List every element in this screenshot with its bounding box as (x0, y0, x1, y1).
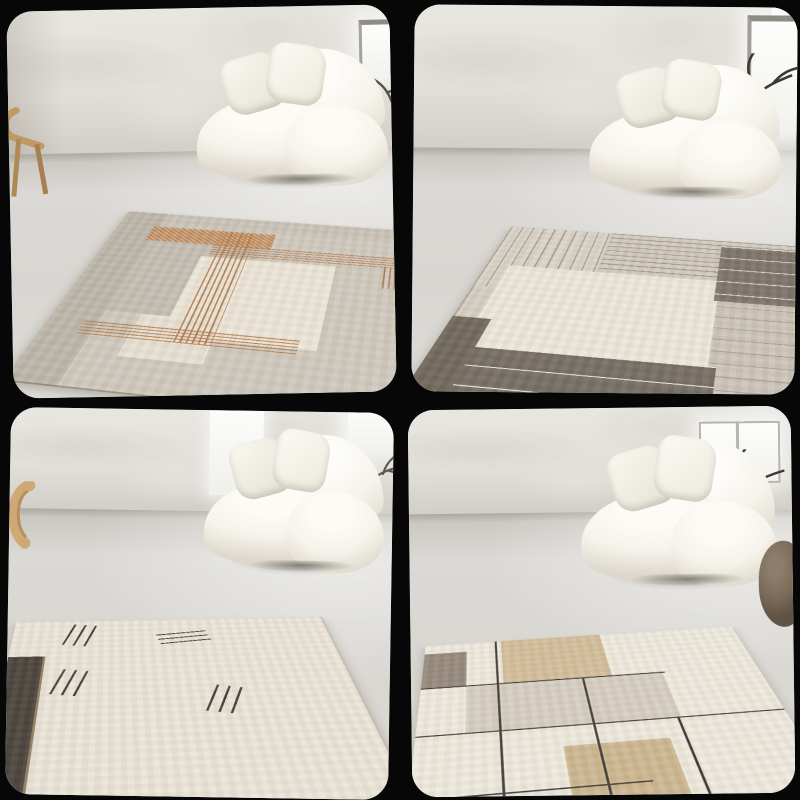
rug-collage (0, 0, 800, 800)
sofa (589, 64, 782, 201)
rug-edge (408, 626, 796, 797)
rug-edge (5, 617, 394, 800)
sofa (580, 441, 777, 590)
wood-chair (6, 104, 54, 201)
rug-dark-block-right (714, 247, 798, 309)
sofa (195, 47, 389, 190)
sofa-base-shadow (614, 186, 771, 202)
tile-top-right (411, 4, 797, 394)
pillow (264, 41, 329, 108)
sofa-base-shadow (607, 573, 767, 591)
pillow (651, 434, 718, 505)
pillow (658, 56, 724, 123)
pillow (269, 426, 332, 494)
sofa (204, 433, 386, 575)
tile-top-left (6, 4, 396, 398)
sofa-base-shadow (227, 559, 375, 577)
rug-edge (6, 211, 396, 398)
wood-stool (5, 480, 44, 551)
sofa-base-shadow (222, 173, 379, 191)
tile-bottom-left (5, 407, 394, 800)
tile-bottom-right (408, 406, 796, 798)
